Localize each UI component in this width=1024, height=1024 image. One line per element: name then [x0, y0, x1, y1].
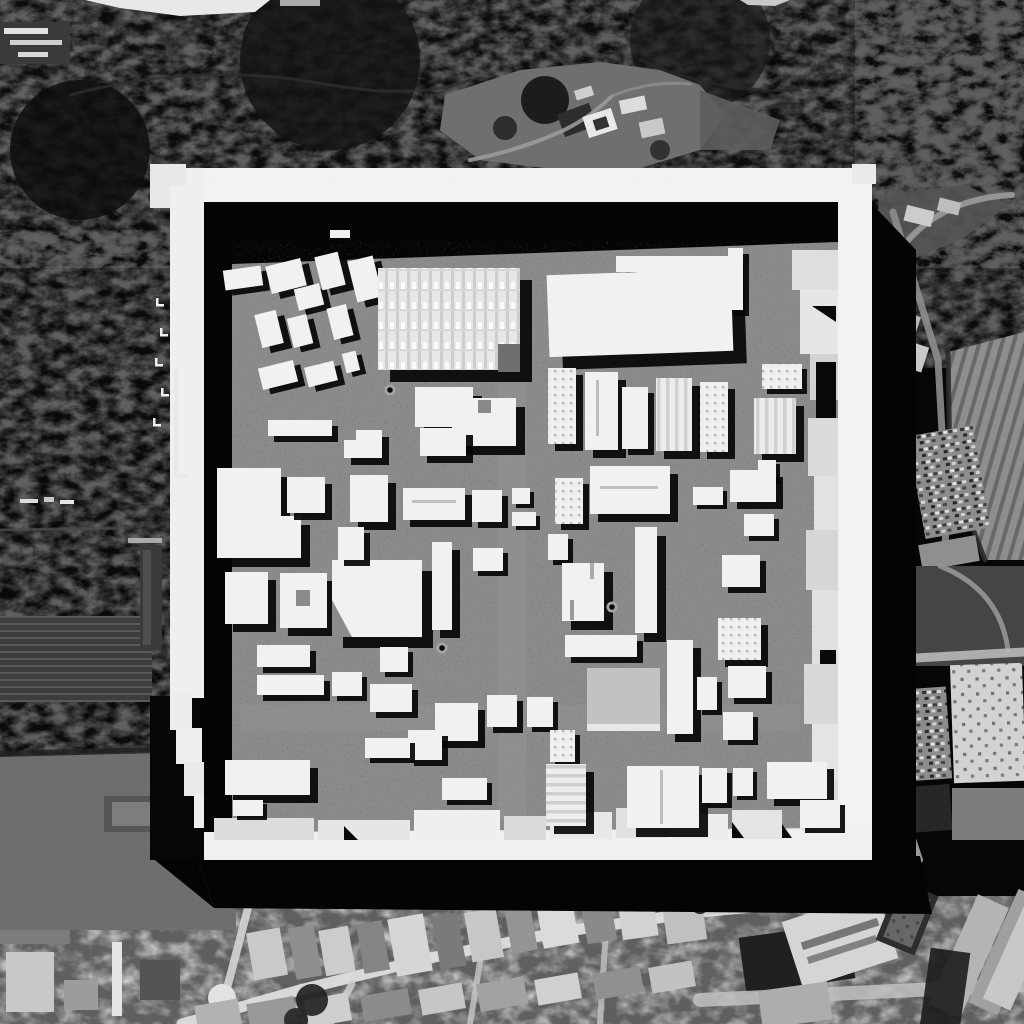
model-building [744, 514, 779, 541]
wall-terrace [800, 290, 838, 354]
vineyard-field [0, 616, 152, 702]
paved-court-edge [587, 724, 660, 731]
model-building [555, 478, 589, 530]
tree-clump [493, 116, 517, 140]
building-roof [472, 490, 502, 522]
wall-mark-foot [155, 364, 163, 367]
model-building [697, 677, 722, 715]
wall-mark-foot [208, 182, 216, 185]
building-roof [403, 488, 465, 520]
building-roof [546, 764, 586, 826]
large-hall [547, 268, 747, 370]
model-building [767, 762, 834, 806]
building-roof [800, 800, 840, 828]
wall-terrace [814, 476, 838, 530]
wall-mark-foot [668, 182, 676, 185]
model-building [762, 364, 807, 394]
building-roof [287, 477, 325, 513]
wall-mark-foot [452, 180, 460, 183]
field-structure [112, 802, 156, 826]
model-building [667, 640, 701, 742]
model-building [723, 712, 758, 745]
building-roof [700, 382, 728, 452]
building-roof [702, 768, 727, 803]
building-roof [547, 269, 734, 357]
wall-mark-foot [849, 320, 857, 323]
town-building [6, 952, 54, 1012]
model-building [635, 527, 666, 642]
model-building [702, 768, 732, 808]
courtyard-notch [344, 430, 356, 440]
building-roof [562, 563, 604, 621]
building-roof [257, 645, 310, 667]
model-building [225, 572, 276, 632]
building-roof [722, 555, 760, 587]
model-building [268, 420, 338, 442]
building-roof [512, 488, 530, 504]
building-roof [693, 487, 723, 505]
wall-terrace [792, 250, 838, 290]
building-roof [350, 475, 388, 522]
wall-mark-foot [478, 853, 486, 856]
roof-seam [590, 563, 594, 579]
building-roof [527, 697, 553, 727]
canopy-blob [10, 80, 150, 220]
courtyard-notch [478, 400, 491, 413]
building-roof [767, 762, 827, 799]
model-building [233, 800, 267, 820]
south-terrace [318, 820, 410, 840]
model-building [622, 387, 654, 455]
manhole-center [439, 645, 445, 651]
terrace-shadow [816, 362, 836, 418]
building-roof [950, 663, 1024, 783]
photo-glare [280, 0, 320, 6]
estate-building [10, 40, 62, 45]
hall-notch [498, 344, 520, 372]
wall-mark-foot [244, 178, 252, 181]
wall-mark-foot [462, 850, 470, 853]
striped-shed [546, 764, 594, 834]
building-roof [730, 470, 776, 502]
building-roof [338, 527, 364, 560]
south-hall [627, 766, 708, 837]
building-roof [217, 468, 281, 524]
model-building [225, 760, 318, 803]
building-roof [257, 675, 324, 695]
model-building [527, 697, 558, 732]
aerial-photo-canvas [0, 0, 1024, 1024]
manhole-dot [385, 385, 396, 396]
model-building [754, 398, 804, 462]
wall-mark-foot [634, 180, 642, 183]
wall-corner-step [176, 728, 202, 764]
building-roof [550, 730, 575, 762]
model-building [700, 382, 735, 459]
model-building [733, 768, 757, 800]
model-building [403, 488, 472, 527]
wall-corner-step [170, 694, 192, 730]
building-roof [330, 230, 350, 238]
building-roof [635, 527, 657, 633]
building-roof [723, 712, 753, 740]
scene [0, 0, 1024, 1024]
model-building [257, 645, 316, 673]
wall-mark-foot [262, 184, 270, 187]
model-building [473, 548, 508, 576]
model-building [370, 684, 418, 718]
model-building [728, 666, 772, 704]
model-building [365, 738, 415, 763]
building-roof [225, 572, 268, 624]
model-building [722, 555, 766, 593]
terrace-shadow [820, 650, 836, 664]
model-building [420, 428, 473, 463]
model-building [442, 778, 492, 805]
building-roof [365, 738, 410, 758]
model-building [693, 487, 727, 509]
model-shadow-south [196, 856, 932, 914]
wall-detail-line [174, 368, 178, 478]
building-roof [728, 666, 766, 698]
building-roof [555, 478, 583, 524]
building-roof [420, 428, 466, 456]
building-roof [225, 760, 310, 795]
aerial-photograph [0, 0, 1024, 1024]
roof-seam [596, 380, 599, 436]
wall-mark-foot [161, 394, 169, 397]
estate-building [18, 52, 48, 57]
speck [60, 500, 74, 504]
retail-building [950, 663, 1024, 790]
speck [128, 538, 162, 543]
wall-mark-foot [494, 855, 502, 858]
manhole-center [609, 604, 615, 610]
model-building [730, 470, 783, 509]
building-roof [332, 672, 362, 696]
roof-seam [600, 486, 658, 489]
speck [20, 499, 38, 503]
roof-seam [412, 500, 456, 503]
building-roof [268, 420, 332, 436]
model-building [332, 672, 367, 701]
building-roof [590, 466, 670, 514]
model-wall-north [170, 168, 872, 202]
model-building [550, 730, 580, 767]
wall-mark-foot [153, 424, 161, 427]
building-roof [548, 534, 568, 560]
model-building [800, 800, 845, 833]
model-building [728, 248, 749, 316]
courtyard-notch [296, 590, 310, 606]
building-roof [754, 398, 796, 454]
speck [44, 497, 54, 502]
town-building [0, 930, 70, 944]
roof-seam [570, 600, 574, 620]
wall-corner-step [852, 164, 876, 184]
wall-terrace [808, 418, 838, 476]
wall-detail-line [174, 474, 188, 478]
model-building [565, 635, 643, 663]
roof-seam [660, 770, 663, 824]
building-roof [217, 516, 301, 558]
model-building [585, 372, 626, 458]
building-roof [656, 378, 692, 451]
paved-court [587, 668, 660, 731]
track [0, 528, 120, 530]
building-roof [622, 387, 648, 449]
wall-mark-foot [156, 304, 164, 307]
tower-slab [432, 542, 460, 638]
wall-mark-foot [855, 304, 863, 307]
wall-mark-foot [850, 288, 858, 291]
building-roof [762, 364, 802, 389]
building-roof [432, 542, 452, 630]
building-roof [380, 647, 408, 672]
wall-mark-foot [330, 178, 338, 181]
south-terrace [214, 818, 314, 840]
building-roof [585, 372, 618, 450]
estate-building [4, 28, 48, 34]
building-roof [370, 684, 412, 712]
model-building [590, 466, 678, 522]
model-wall-east [838, 168, 872, 860]
model-building [257, 675, 330, 701]
wall-mark-foot [855, 336, 863, 339]
building-roof [718, 618, 761, 660]
embankment [143, 550, 151, 645]
building-roof [733, 768, 753, 796]
building-roof [667, 640, 693, 734]
building-roof [728, 248, 743, 310]
manhole-center [387, 387, 393, 393]
model-building [217, 516, 310, 567]
model-building [350, 475, 396, 530]
model-building [718, 618, 768, 667]
dark-yard [140, 960, 180, 1000]
wall-terrace [806, 530, 838, 590]
south-terrace [414, 810, 500, 840]
building-roof [512, 512, 536, 526]
tree-clump [650, 140, 670, 160]
model-building [512, 512, 540, 530]
building-roof [473, 548, 503, 571]
building-roof [744, 514, 774, 536]
building-roof [233, 800, 263, 816]
south-terrace [504, 816, 546, 840]
model-building [656, 378, 700, 459]
town-building [64, 980, 98, 1010]
model-building [548, 368, 583, 451]
building-roof [487, 695, 517, 727]
wall-corner-step [150, 164, 170, 208]
wall-terrace [804, 664, 838, 724]
wall-mark-foot [160, 334, 168, 337]
building-roof [565, 635, 637, 657]
open-ground [952, 788, 1024, 840]
manhole-dot [437, 643, 448, 654]
model-building [562, 563, 613, 630]
building-roof [442, 778, 487, 800]
town-building [112, 942, 122, 1016]
building-roof [697, 677, 717, 710]
manhole-dot [607, 602, 618, 613]
building-roof [548, 368, 576, 444]
wall-mark-foot [652, 176, 660, 179]
